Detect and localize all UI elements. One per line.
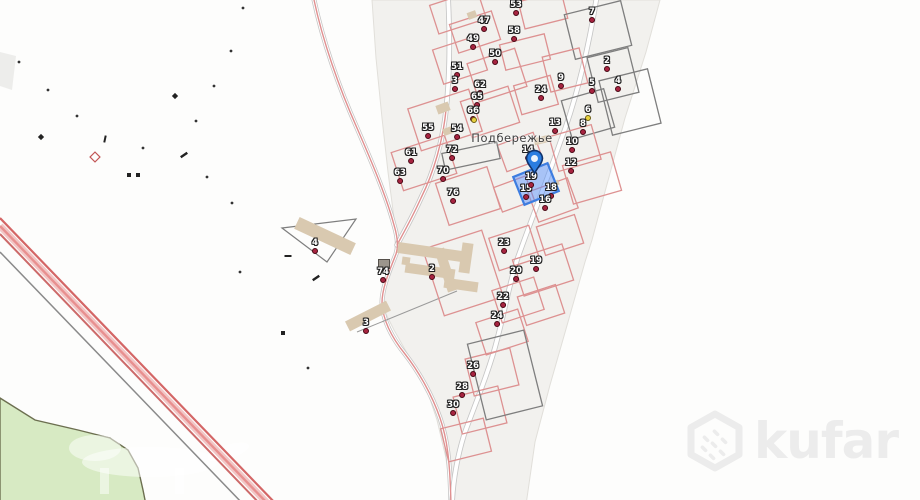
map-marker-22[interactable]: 22 <box>497 293 509 308</box>
marker-dot <box>523 194 529 200</box>
field-dash <box>285 255 292 257</box>
field-dash <box>312 275 320 282</box>
marker-number: 54 <box>451 125 463 133</box>
marker-dot <box>470 371 476 377</box>
map-marker-54[interactable]: 54 <box>451 125 463 140</box>
field-dot <box>47 89 50 92</box>
map-marker-10[interactable]: 10 <box>566 138 578 153</box>
map-marker-70[interactable]: 70 <box>437 167 449 182</box>
marker-number: 53 <box>510 1 522 9</box>
marker-dot <box>470 44 476 50</box>
place-name-label: Подбережье <box>471 131 552 145</box>
marker-number: 6 <box>585 106 591 114</box>
building <box>401 256 410 265</box>
marker-dot <box>589 88 595 94</box>
map-marker-8[interactable]: 8 <box>580 120 586 135</box>
map-marker-3[interactable]: 3 <box>452 77 458 92</box>
marker-dot <box>454 134 460 140</box>
marker-number: 4 <box>312 239 318 247</box>
marker-number: 8 <box>580 120 586 128</box>
kufar-logo-text: kufar <box>754 416 898 466</box>
marker-number: 55 <box>422 124 434 132</box>
field-dot <box>76 115 79 118</box>
marker-number: 65 <box>471 93 483 101</box>
marker-dot <box>569 147 575 153</box>
map-marker-50[interactable]: 50 <box>489 50 501 65</box>
marker-number: 2 <box>429 265 435 273</box>
marker-number: 20 <box>510 267 522 275</box>
map-marker-12[interactable]: 12 <box>565 159 577 174</box>
field-square <box>281 331 285 335</box>
field-dash <box>103 135 106 142</box>
marker-dot <box>363 328 369 334</box>
field-dot <box>18 61 21 64</box>
marker-number: 28 <box>456 383 468 391</box>
marker-number: 7 <box>589 8 595 16</box>
field-dot <box>242 7 245 10</box>
marker-number: 9 <box>558 74 564 82</box>
field-mark <box>38 134 44 140</box>
field-dot <box>142 147 145 150</box>
marker-dot <box>452 86 458 92</box>
map-marker-2[interactable]: 2 <box>604 57 610 72</box>
field-dash <box>180 152 188 159</box>
field-diamond <box>90 152 100 162</box>
marker-dot <box>542 205 548 211</box>
marker-number: 58 <box>508 27 520 35</box>
field-dot <box>213 85 216 88</box>
map-marker-26[interactable]: 26 <box>467 362 479 377</box>
marker-dot <box>459 392 465 398</box>
marker-dot <box>511 36 517 42</box>
marker-dot <box>449 155 455 161</box>
marker-dot <box>501 248 507 254</box>
marker-dot <box>500 302 506 308</box>
marker-number: 18 <box>545 184 557 192</box>
marker-number: 12 <box>565 159 577 167</box>
marker-number: 70 <box>437 167 449 175</box>
map-marker-20[interactable]: 20 <box>510 267 522 282</box>
map-marker-28[interactable]: 28 <box>456 383 468 398</box>
map-marker-3[interactable]: 3 <box>363 319 369 334</box>
marker-number: 24 <box>535 86 547 94</box>
map-marker-23[interactable]: 23 <box>498 239 510 254</box>
marker-dot <box>494 321 500 327</box>
marker-dot <box>533 266 539 272</box>
field-dot <box>206 176 209 179</box>
map-canvas[interactable]: 5374758495025193456224656661385554107214… <box>0 0 920 500</box>
map-marker-4[interactable]: 4 <box>615 77 621 92</box>
marker-number: 47 <box>478 17 490 25</box>
marker-dot <box>589 17 595 23</box>
marker-number: 76 <box>447 189 459 197</box>
gray-patch <box>0 52 16 90</box>
map-marker-4[interactable]: 4 <box>312 239 318 254</box>
map-marker-30[interactable]: 30 <box>447 401 459 416</box>
map-marker-74[interactable]: 74 <box>377 268 389 283</box>
map-marker-49[interactable]: 49 <box>467 35 479 50</box>
marker-dot <box>408 158 414 164</box>
marker-dot <box>380 277 386 283</box>
marker-number: 61 <box>405 149 417 157</box>
marker-dot <box>538 95 544 101</box>
marker-number: 24 <box>491 312 503 320</box>
marker-number: 62 <box>474 81 486 89</box>
marker-number: 26 <box>467 362 479 370</box>
map-marker-72[interactable]: 72 <box>446 146 458 161</box>
marker-number: 66 <box>467 107 479 115</box>
marker-dot <box>513 10 519 16</box>
map-marker-58[interactable]: 58 <box>508 27 520 42</box>
map-marker-19[interactable]: 19 <box>530 257 542 272</box>
location-pin[interactable] <box>525 149 544 179</box>
map-marker-24[interactable]: 24 <box>491 312 503 327</box>
marker-number: 16 <box>539 196 551 204</box>
marker-dot-yellow <box>471 117 477 123</box>
marker-number: 30 <box>447 401 459 409</box>
marker-number: 4 <box>615 77 621 85</box>
map-marker-63[interactable]: 63 <box>394 169 406 184</box>
marker-number: 50 <box>489 50 501 58</box>
marker-number: 10 <box>566 138 578 146</box>
map-marker-7[interactable]: 7 <box>589 8 595 23</box>
map-marker-24[interactable]: 24 <box>535 86 547 101</box>
marker-number: 3 <box>452 77 458 85</box>
marker-dot <box>450 410 456 416</box>
field-dot <box>307 367 310 370</box>
field-dot <box>230 50 233 53</box>
marker-number: 19 <box>530 257 542 265</box>
marker-dot <box>604 66 610 72</box>
marker-number: 3 <box>363 319 369 327</box>
marker-number: 51 <box>451 63 463 71</box>
map-marker-47[interactable]: 47 <box>478 17 490 32</box>
field-square <box>127 173 131 177</box>
map-marker-55[interactable]: 55 <box>422 124 434 139</box>
marker-dot <box>558 83 564 89</box>
marker-dot <box>513 276 519 282</box>
marker-dot <box>481 26 487 32</box>
marker-dot <box>580 129 586 135</box>
marker-number: 74 <box>377 268 389 276</box>
marker-dot <box>397 178 403 184</box>
field-dot <box>231 202 234 205</box>
marker-number: 2 <box>604 57 610 65</box>
map-marker-9[interactable]: 9 <box>558 74 564 89</box>
marker-number: 49 <box>467 35 479 43</box>
field-dot <box>195 120 198 123</box>
marker-dot <box>450 198 456 204</box>
map-marker-13[interactable]: 13 <box>549 119 561 134</box>
marker-dot <box>528 182 534 188</box>
map-marker-5[interactable]: 5 <box>589 79 595 94</box>
marker-number: 72 <box>446 146 458 154</box>
field-mark <box>172 93 178 99</box>
marker-number: 5 <box>589 79 595 87</box>
marker-number: 63 <box>394 169 406 177</box>
field-dot <box>239 271 242 274</box>
marker-dot <box>425 133 431 139</box>
marker-dot <box>568 168 574 174</box>
marker-number: 23 <box>498 239 510 247</box>
marker-dot <box>440 176 446 182</box>
map-marker-76[interactable]: 76 <box>447 189 459 204</box>
map-marker-2[interactable]: 2 <box>429 265 435 280</box>
marker-number: 22 <box>497 293 509 301</box>
kufar-watermark: kufar <box>686 410 898 472</box>
yellow-poi-dot <box>471 116 477 123</box>
map-marker-53[interactable]: 53 <box>510 1 522 16</box>
marker-dot <box>429 274 435 280</box>
marker-number: 13 <box>549 119 561 127</box>
marker-dot <box>312 248 318 254</box>
map-marker-61[interactable]: 61 <box>405 149 417 164</box>
field-square <box>136 173 140 177</box>
kufar-hexagon-icon <box>686 410 744 472</box>
marker-dot <box>492 59 498 65</box>
marker-dot <box>552 128 558 134</box>
marker-dot <box>615 86 621 92</box>
map-marker-16[interactable]: 16 <box>539 196 551 211</box>
